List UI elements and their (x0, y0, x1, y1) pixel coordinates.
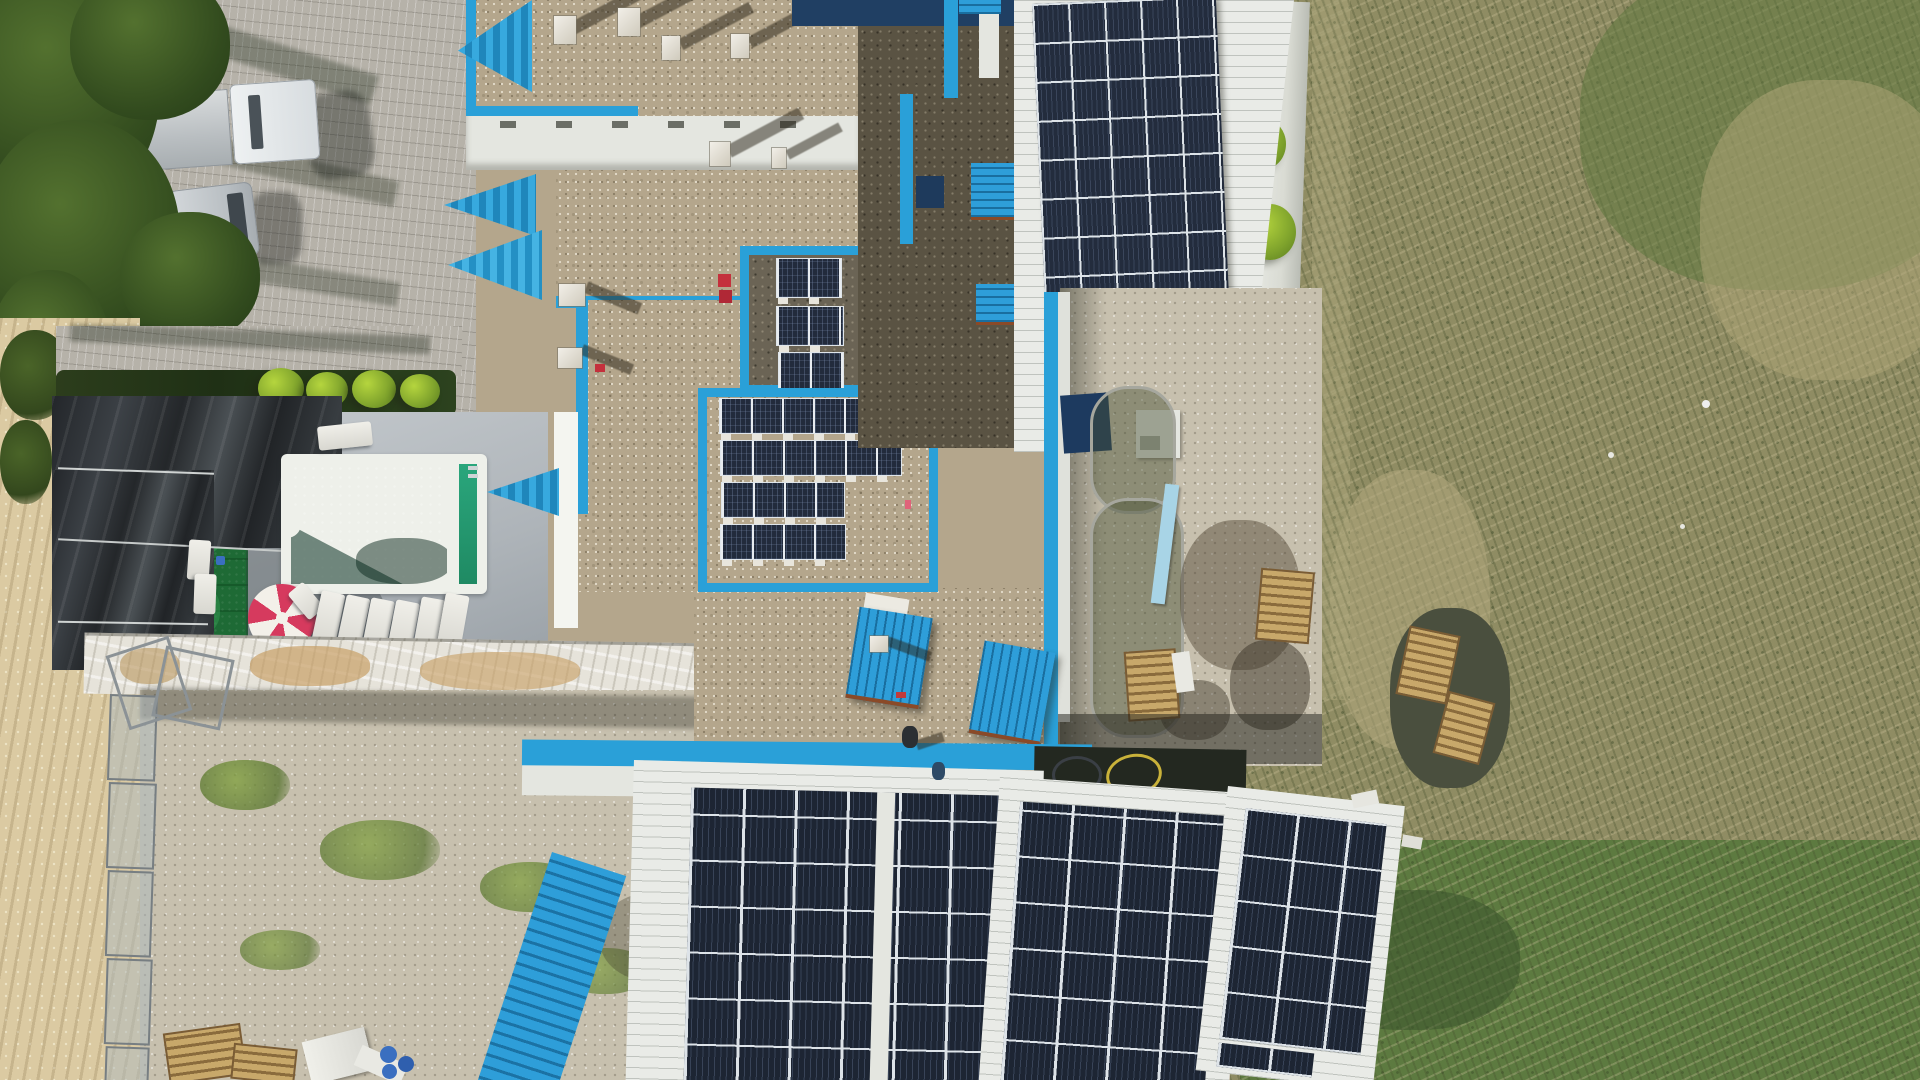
glass-panel-3 (105, 870, 154, 958)
chimney-5 (710, 142, 730, 166)
hedge-bush-4 (400, 374, 440, 408)
tarp-wood-patch-3 (420, 652, 580, 690)
wall-window-4 (668, 121, 684, 128)
pv-feet-6 (722, 560, 844, 566)
yard-weeds-2 (320, 820, 440, 880)
parapet-top-step (466, 106, 638, 116)
skylight-1 (959, 0, 1001, 14)
solar-array-b2 (1000, 801, 1223, 1080)
glass-panel-5 (104, 1046, 149, 1080)
pv-row-pair-3 (778, 352, 844, 390)
leaning-frame-2 (151, 646, 234, 731)
glass-panel-2 (106, 782, 157, 870)
white-speck-3 (1680, 524, 1685, 529)
skylight-2 (971, 163, 1017, 220)
pool-divider (447, 464, 459, 584)
parasol-center (276, 612, 288, 624)
rooftop-unit (979, 14, 999, 78)
grass-dry-patch (1700, 80, 1920, 380)
turf-lounger-2 (193, 574, 216, 615)
chimney-3 (662, 36, 680, 60)
wall-window-2 (556, 121, 572, 128)
chimney-2 (618, 8, 640, 36)
wall-window-3 (612, 121, 628, 128)
blue-barrel-3 (382, 1064, 397, 1079)
white-speck (1702, 400, 1710, 408)
skylight-3 (976, 284, 1014, 325)
parapet-east-1 (900, 94, 913, 244)
vent-2 (558, 348, 582, 368)
aerial-photo-canvas (0, 0, 1920, 1080)
wall-window-1 (500, 121, 516, 128)
pool-side-wall (554, 412, 578, 628)
pv-row-4b (720, 524, 846, 560)
solar-array-b3 (1219, 808, 1386, 1055)
solar-array-b1 (683, 788, 1003, 1080)
red-item-roof (595, 364, 605, 372)
chimney-6 (772, 148, 786, 168)
person-1 (902, 726, 918, 748)
pool-ladder-2 (468, 474, 478, 478)
wall-window-5 (724, 121, 740, 128)
hedge-bush-3 (352, 370, 396, 408)
building-east-wall (1058, 292, 1070, 722)
pv-feet-1 (778, 298, 840, 304)
chimney-1 (554, 16, 576, 44)
blue-barrel-2 (398, 1056, 414, 1072)
yard-pallet-2 (230, 1043, 297, 1080)
van-shadow (250, 192, 302, 264)
vent-1 (559, 284, 585, 306)
parapet-east-2 (944, 0, 958, 98)
white-speck-2 (1608, 452, 1614, 458)
red-marks (896, 692, 906, 698)
chimney-4 (731, 34, 749, 58)
red-chair-1 (718, 274, 731, 287)
pool-ladder (468, 466, 478, 470)
tree-canopy-4 (120, 212, 260, 342)
tarp-wood-patch-2 (250, 646, 370, 686)
blue-bin (216, 556, 225, 565)
solar-roof-3 (1196, 786, 1405, 1080)
courtyard-pallet-1 (1255, 568, 1315, 644)
pool-small-section (459, 464, 477, 584)
pv-row-4a (721, 482, 845, 518)
person-2 (932, 762, 945, 780)
scrub-2 (0, 420, 52, 504)
glass-panel-4 (104, 958, 153, 1046)
blue-barrel-1 (380, 1046, 397, 1063)
vent-3 (870, 636, 888, 652)
pv-row-pair-2 (776, 306, 844, 346)
yard-weeds-1 (200, 760, 290, 810)
navy-hatch (916, 176, 944, 208)
pv-row-pair-1 (776, 258, 842, 298)
red-chair-2 (719, 290, 732, 303)
pink-item (905, 500, 911, 509)
pool-water-shadow-2 (356, 538, 452, 584)
yard-weeds-4 (240, 930, 320, 970)
truck-cab (229, 79, 320, 165)
